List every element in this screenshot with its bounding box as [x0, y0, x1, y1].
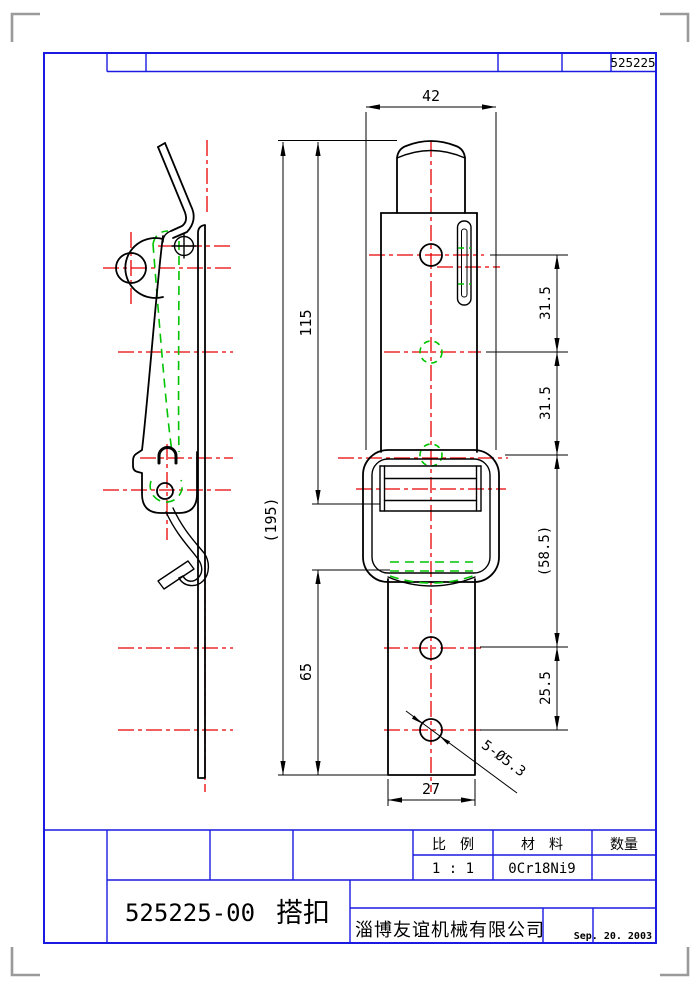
dim-25.5: 25.5 [538, 647, 557, 730]
front-view [338, 141, 508, 792]
dim-65: 65 [297, 570, 318, 775]
dim-195: (195) [262, 142, 283, 775]
dim-58.5-label: (58.5) [537, 526, 553, 577]
engineering-drawing: 525225 [0, 0, 700, 989]
dim-115-label: 115 [297, 309, 315, 336]
side-mounting-strip [198, 225, 205, 778]
dim-58.5: (58.5) [537, 455, 557, 647]
dim-42: 42 [366, 87, 496, 107]
hole-callout-label: 5-Ø5.3 [478, 737, 528, 780]
drawing-sheet: 525225 [0, 0, 700, 989]
side-view [103, 140, 233, 792]
drawing-number-top: 525225 [610, 55, 655, 70]
dim-27-label: 27 [422, 780, 440, 798]
side-tongue-hook [158, 143, 194, 242]
scale-label: 比 例 [432, 837, 474, 853]
dim-27: 27 [388, 780, 475, 800]
sheet-frame: 525225 [44, 53, 656, 943]
dim-31.5-upper: 31.5 [538, 255, 557, 352]
side-slot-outer [458, 221, 472, 305]
side-bail-wire-section [157, 483, 173, 499]
dim-195-label: (195) [262, 497, 280, 542]
dim-115: 115 [297, 142, 318, 504]
scale-value: 1 : 1 [432, 861, 474, 877]
side-centerlines [103, 140, 233, 792]
part-number: 525225-00 [125, 899, 255, 927]
dimensions: 42 115 (195) 65 31.5 31.5 (58.5) [262, 87, 568, 806]
quantity-label: 数量 [610, 837, 638, 853]
dim-42-label: 42 [422, 87, 440, 105]
date: Sep. 20. 2003 [574, 931, 652, 942]
dim-65-label: 65 [297, 663, 315, 681]
part-name: 搭扣 [276, 898, 330, 929]
dim-31.5-upper-label: 31.5 [538, 286, 554, 320]
dim-31.5-lower: 31.5 [538, 352, 557, 455]
material-label: 材 料 [521, 837, 563, 853]
material-value: 0Cr18Ni9 [508, 861, 575, 877]
company-name: 淄博友谊机械有限公司 [355, 920, 545, 941]
corner-marks [12, 14, 688, 975]
dim-25.5-label: 25.5 [538, 671, 554, 705]
title-block: 比 例 材 料 数量 1 : 1 0Cr18Ni9 525225-00 搭扣 淄… [44, 830, 656, 943]
side-bail-wire-hook [158, 508, 208, 589]
side-slot-inner [462, 229, 468, 297]
dim-31.5-lower-label: 31.5 [538, 386, 554, 420]
front-latch-body [381, 213, 477, 452]
